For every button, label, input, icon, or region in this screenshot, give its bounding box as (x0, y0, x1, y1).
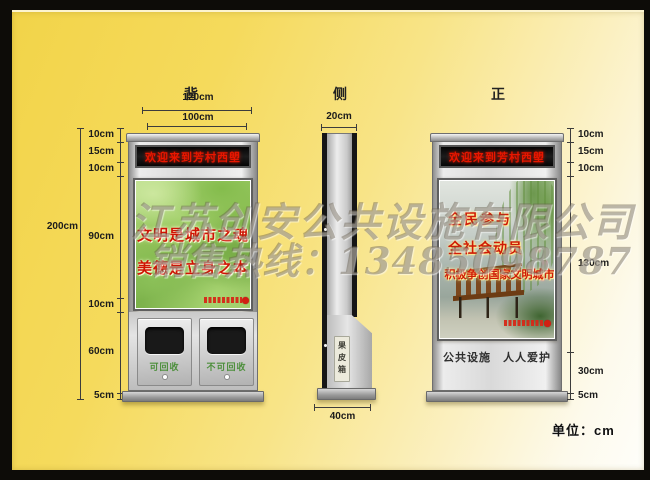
dim-label-40cm: 40cm (314, 411, 371, 423)
dim-label-20cm: 20cm (315, 111, 363, 123)
led-text: 欢迎来到芳村西塱 (145, 149, 241, 165)
poster-slogan: 全民参与 (448, 209, 512, 229)
bench-legs (459, 297, 520, 317)
footer-slogan: 公共设施 人人爱护 (437, 352, 557, 364)
led-text: 欢迎来到芳村西塱 (449, 149, 545, 165)
dim-tick (117, 162, 124, 163)
dim-line-right-segments (570, 128, 571, 400)
dim-label-seg: 130cm (578, 258, 609, 270)
keyhole (225, 375, 229, 379)
poster-slogan: 积极争创国家文明城市 (445, 266, 554, 282)
dim-label-seg: 10cm (82, 299, 114, 311)
dim-tick (117, 176, 124, 177)
bolt-dot (324, 344, 327, 347)
dim-tick (567, 176, 574, 177)
brochure-page: 背 侧 正 120cm 100cm 200cm 10cm 15cm 10cm 9… (0, 0, 650, 480)
led-display: 欢迎来到芳村西塱 (135, 145, 251, 168)
dim-line-100cm (147, 126, 247, 127)
dim-tick (567, 162, 574, 163)
dim-tick (567, 393, 574, 394)
dim-label-seg: 60cm (82, 346, 114, 358)
dim-line-20cm (321, 127, 357, 128)
poster-slogan: 美德是立身之本 (136, 257, 250, 278)
dim-label-seg: 5cm (82, 390, 114, 402)
poster-slogan: 文明是城市之魂 (136, 224, 250, 245)
unit-note: 单位：cm (552, 420, 615, 439)
led-display: 欢迎来到芳村西塱 (439, 145, 555, 168)
dim-label-seg: 5cm (578, 390, 598, 402)
dim-tick (567, 142, 574, 143)
view-label-front: 正 (483, 84, 513, 104)
dim-tick (117, 312, 124, 313)
dim-line-200cm (80, 128, 81, 400)
dim-label-seg: 15cm (578, 146, 604, 158)
dim-label-200cm: 200cm (36, 221, 78, 233)
dim-line-120cm (142, 110, 252, 111)
poster-caption-stamp (504, 320, 544, 326)
dim-tick (117, 298, 124, 299)
view-label-side: 侧 (325, 84, 355, 104)
poster-seal (242, 297, 249, 304)
poster-frame: 文明是城市之魂 美德是立身之本 (133, 178, 253, 311)
dim-tick (567, 352, 574, 353)
dim-label-100cm: 100cm (168, 112, 228, 124)
bin-label: 可回收 (138, 360, 191, 373)
cabinet-base (122, 391, 264, 402)
dim-label-120cm: 120cm (168, 92, 228, 104)
bin-label: 不可回收 (200, 360, 253, 373)
poster-slogan: 全社会动员 (448, 238, 523, 258)
dim-label-seg: 10cm (578, 163, 604, 175)
dim-label-seg: 10cm (82, 129, 114, 141)
side-edge-strip-right (352, 133, 357, 317)
bin-opening (207, 327, 246, 354)
cabinet-base (426, 391, 568, 402)
dim-line-40cm (314, 407, 371, 408)
poster-image-leaves: 文明是城市之魂 美德是立身之本 (136, 181, 250, 308)
keyhole (163, 375, 167, 379)
poster-frame: 全民参与 全社会动员 积极争创国家文明城市 (437, 178, 557, 341)
dim-label-seg: 90cm (82, 231, 114, 243)
poster-seal (544, 320, 551, 327)
dim-label-seg: 10cm (578, 129, 604, 141)
fruit-bin-plaque: 果皮箱 (334, 336, 350, 382)
dim-line-left-segments (120, 128, 121, 400)
poster-caption-stamp (204, 297, 242, 303)
side-base (317, 388, 376, 400)
dim-label-seg: 30cm (578, 366, 604, 378)
bin-opening (145, 327, 184, 354)
poster-image-lakeside: 全民参与 全社会动员 积极争创国家文明城市 (440, 181, 554, 338)
bolt-dot (324, 228, 327, 231)
dim-label-seg: 15cm (82, 146, 114, 158)
bin-door-nonrecyclable: 不可回收 (199, 318, 254, 386)
dim-label-seg: 10cm (82, 163, 114, 175)
bin-door-recyclable: 可回收 (137, 318, 192, 386)
dim-tick (117, 142, 124, 143)
